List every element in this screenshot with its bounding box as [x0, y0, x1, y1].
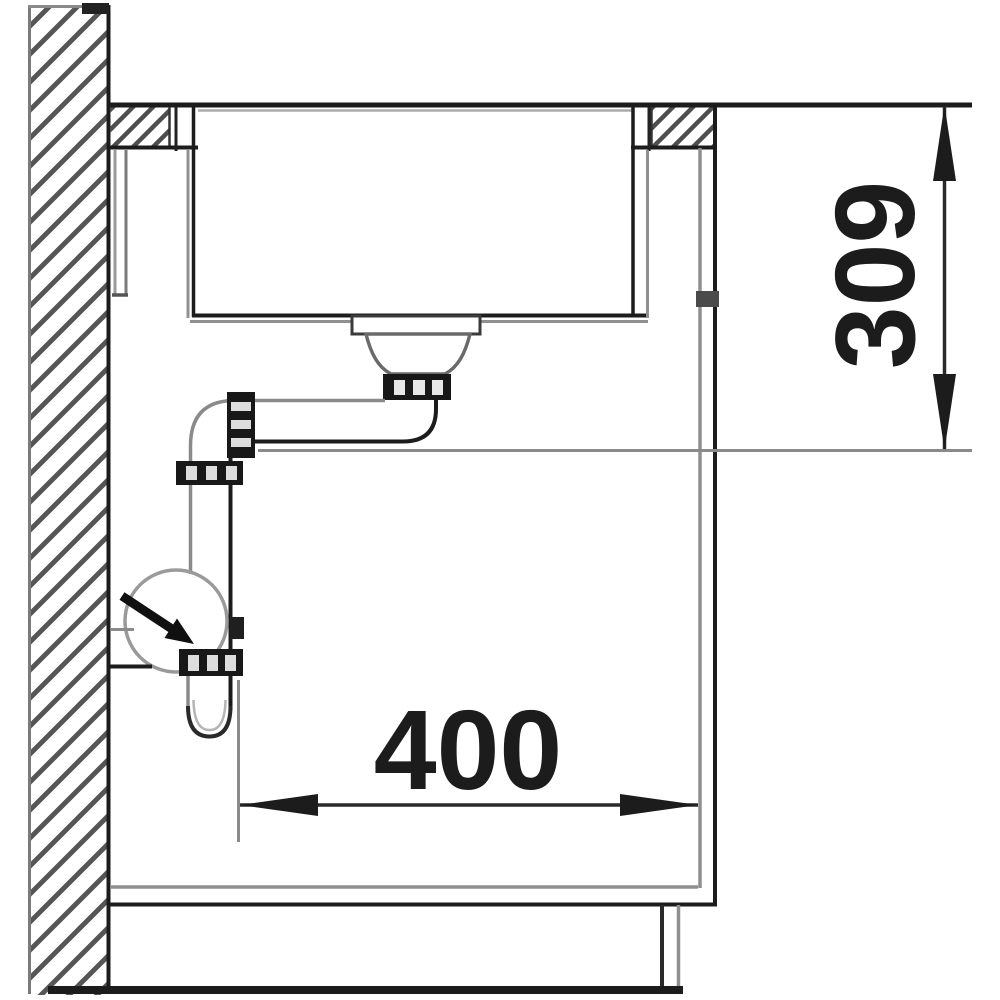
nut-slot [186, 466, 197, 480]
nut-slot [226, 466, 237, 480]
trap-connector [230, 617, 244, 639]
countertop [108, 105, 972, 151]
nut-slot [231, 402, 251, 411]
dim-arrow-left-icon [240, 794, 318, 816]
u-bend-inner [194, 700, 226, 730]
technical-drawing-page: 309 400 [0, 0, 1000, 1000]
undermount-sink-bowl [188, 107, 649, 322]
cabinet [48, 105, 719, 994]
dim-arrow-up-icon [933, 105, 956, 181]
nut-slot [207, 655, 218, 671]
drain-locknut-slot [394, 380, 405, 395]
dimension-vertical-label: 309 [812, 181, 938, 370]
nut-slot [225, 655, 236, 671]
horizontal-pipe-bottom [252, 400, 436, 442]
dim-arrow-right-icon [620, 794, 698, 816]
drain-funnel [366, 334, 470, 374]
drain-flange [352, 316, 480, 334]
wall-hatch-fill [28, 5, 109, 995]
sink-section-drawing: 309 400 [0, 0, 1000, 1000]
flow-direction-arrow-shaft [122, 596, 172, 629]
countertop-right-section [651, 108, 713, 147]
drain-locknut-slot [432, 380, 443, 395]
siphon-trap [110, 570, 244, 737]
dimension-vertical-309: 309 [258, 105, 972, 451]
dim-arrow-down-icon [933, 374, 956, 450]
drain-strainer [352, 316, 480, 400]
countertop-left-section [110, 108, 170, 147]
floor-line [48, 986, 683, 994]
dimension-horizontal-label: 400 [374, 687, 563, 813]
nut-slot [188, 655, 199, 671]
hatched-wall [28, 3, 109, 995]
wall-top-cap [82, 3, 109, 14]
nut-slot [231, 438, 251, 447]
nut-slot [206, 466, 217, 480]
dimension-horizontal-400: 400 [240, 687, 698, 816]
nut-slot [231, 420, 251, 429]
cabinet-connector [696, 291, 719, 307]
drain-locknut-slot [413, 380, 425, 395]
